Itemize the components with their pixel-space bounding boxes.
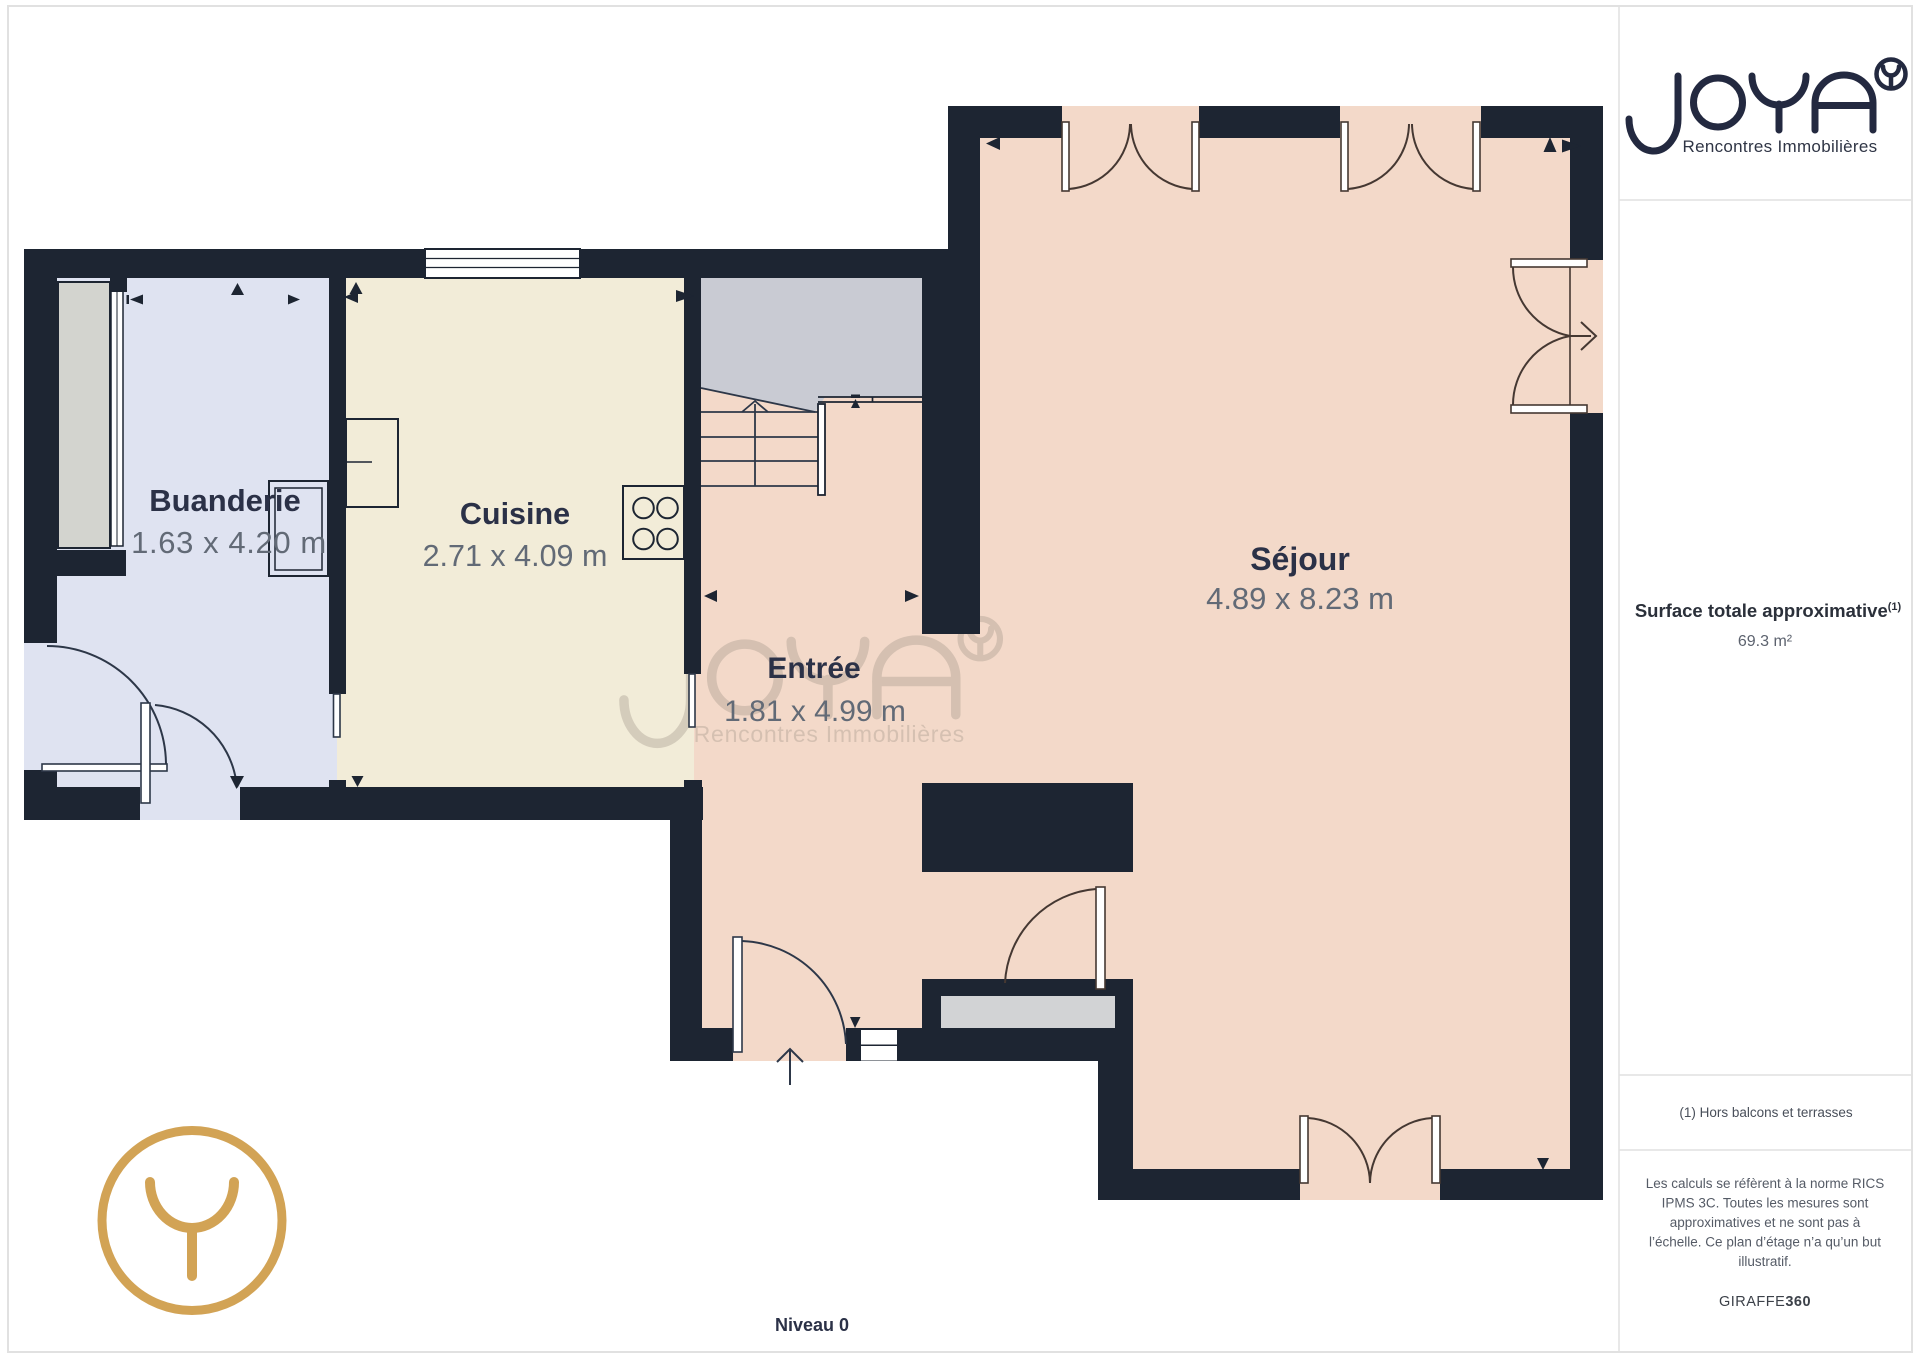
svg-text:Séjour: Séjour: [1250, 541, 1350, 577]
svg-text:approximatives et ne sont pas: approximatives et ne sont pas à: [1670, 1215, 1861, 1230]
svg-text:2.71 x 4.09 m: 2.71 x 4.09 m: [423, 539, 608, 573]
svg-text:illustratif.: illustratif.: [1738, 1254, 1791, 1269]
svg-text:1.81 x 4.99 m: 1.81 x 4.99 m: [724, 695, 906, 728]
svg-text:GIRAFFE360: GIRAFFE360: [1719, 1294, 1811, 1310]
svg-text:1.63 x 4.20 m: 1.63 x 4.20 m: [131, 525, 327, 560]
svg-text:Cuisine: Cuisine: [460, 497, 570, 531]
svg-text:Buanderie: Buanderie: [149, 483, 301, 518]
svg-text:Entrée: Entrée: [767, 652, 860, 685]
svg-text:(1) Hors balcons et terrasses: (1) Hors balcons et terrasses: [1679, 1105, 1853, 1120]
svg-text:l’échelle. Ce plan d’étage n’a: l’échelle. Ce plan d’étage n’a qu’un but: [1649, 1235, 1881, 1250]
svg-text:Surface totale approximative(1: Surface totale approximative(1): [1635, 600, 1902, 621]
svg-text:Rencontres Immobilières: Rencontres Immobilières: [1683, 137, 1878, 156]
svg-text:69.3 m²: 69.3 m²: [1738, 633, 1793, 650]
svg-text:Les calculs se réfèrent à la n: Les calculs se réfèrent à la norme RICS: [1646, 1176, 1885, 1191]
svg-text:Niveau 0: Niveau 0: [775, 1315, 849, 1335]
svg-text:4.89 x 8.23 m: 4.89 x 8.23 m: [1206, 581, 1394, 616]
svg-text:IPMS 3C. Toutes les mesures so: IPMS 3C. Toutes les mesures sont: [1662, 1196, 1869, 1211]
